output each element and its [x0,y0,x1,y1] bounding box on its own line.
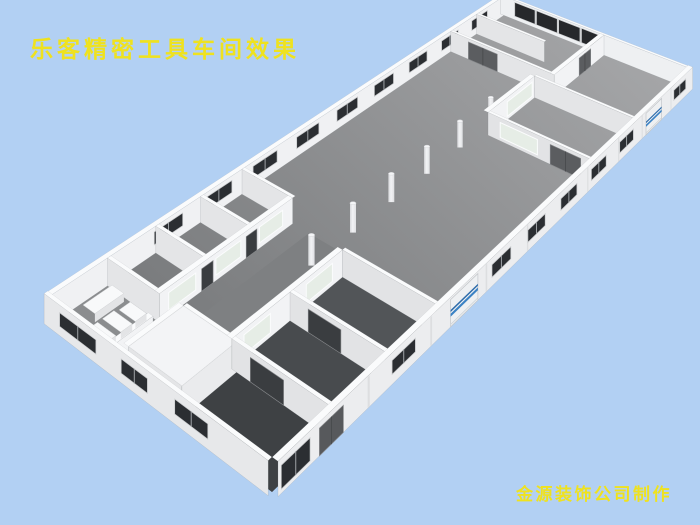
wall-seam [642,115,643,138]
column-top [424,145,430,148]
column [350,203,356,233]
wall-seam [430,316,432,347]
page-title: 乐客精密工具车间效果 [30,30,300,64]
credit-text: 金源装饰公司制作 [516,480,672,505]
wall-seam [671,88,672,110]
column [424,147,430,174]
column [388,174,394,202]
column [308,235,314,266]
column [457,121,462,147]
column-top [457,120,462,123]
column-top [488,96,493,99]
column-top [308,233,314,236]
column-top [388,172,394,175]
wall-seam [618,138,619,162]
workshop-render-scene: 乐客精密工具车间效果 金源装饰公司制作 [0,0,700,525]
building-3d-render [0,0,700,525]
wall-seam [587,167,588,192]
column-top [350,202,356,205]
wall-seam [486,263,488,292]
wall-seam [368,375,370,408]
